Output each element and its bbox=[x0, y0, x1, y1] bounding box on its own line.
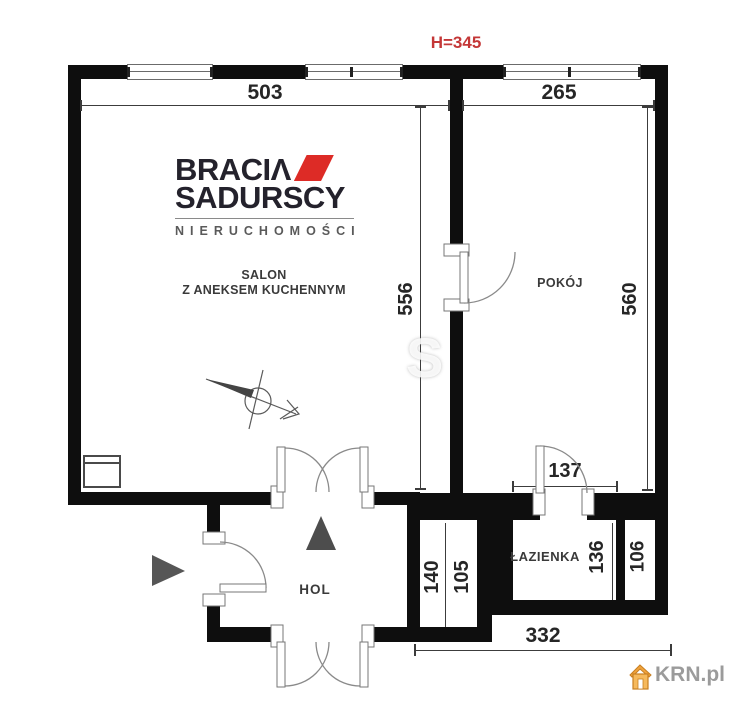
door-swing-arc bbox=[220, 542, 266, 588]
logo-divider bbox=[175, 218, 354, 219]
dimtick bbox=[462, 100, 464, 111]
window-glass-line bbox=[128, 71, 212, 72]
entrance-door bbox=[203, 532, 266, 606]
dimtick bbox=[414, 644, 416, 656]
dim-bath-width: 137 bbox=[525, 461, 605, 481]
door-leaf bbox=[277, 447, 285, 492]
door-swing-arc bbox=[285, 642, 329, 686]
door-swing-arc bbox=[464, 252, 515, 303]
agency-logo: BRACIΛ SADURSCY NIERUCHOMOŚCI bbox=[175, 154, 361, 238]
window-glass-line bbox=[504, 71, 640, 72]
dimtick bbox=[512, 481, 514, 492]
dimtick bbox=[642, 106, 653, 108]
salon-line2: Z ANEKSEM KUCHENNYM bbox=[164, 283, 364, 298]
dimline-265 bbox=[463, 105, 655, 106]
dimtick bbox=[616, 481, 618, 492]
logo-line2-text: SADURSCY bbox=[175, 182, 361, 213]
dim-pokoj-width: 265 bbox=[519, 82, 599, 103]
window-mullion bbox=[400, 67, 403, 77]
wall-right bbox=[655, 65, 668, 615]
dimline-332 bbox=[415, 650, 672, 651]
wall-left bbox=[68, 65, 81, 505]
dim-salon-depth: 556 bbox=[396, 278, 416, 320]
window-mullion bbox=[127, 67, 130, 77]
wall-hol-bottom-left bbox=[207, 627, 277, 642]
dimtick bbox=[415, 488, 426, 490]
door-leaf bbox=[460, 252, 468, 303]
dimline-556 bbox=[420, 107, 421, 490]
dimline-137 bbox=[513, 486, 618, 487]
wall-salon-bottom-left bbox=[68, 492, 277, 505]
window-salon-1 bbox=[127, 64, 213, 80]
room-label-salon: SALON Z ANEKSEM KUCHENNYM bbox=[164, 268, 364, 298]
wall-bath-top-left bbox=[407, 493, 540, 520]
dimtick bbox=[80, 100, 82, 111]
ceiling-height-label: H=345 bbox=[416, 33, 496, 53]
watermark-letter: S bbox=[406, 330, 443, 386]
compass-arrowhead bbox=[206, 379, 254, 398]
room-label-hol: HOL bbox=[285, 582, 345, 598]
door-swing-arc bbox=[316, 642, 360, 686]
dimline-560 bbox=[647, 107, 648, 491]
wall-bath-right bbox=[616, 520, 625, 600]
logo-red-flag-icon bbox=[294, 155, 334, 181]
logo-line3-text: NIERUCHOMOŚCI bbox=[175, 224, 361, 238]
dimtick bbox=[670, 644, 672, 656]
dimline-niche bbox=[445, 523, 446, 627]
dimline-136 bbox=[612, 523, 613, 600]
door-leaf bbox=[360, 642, 368, 687]
dim-salon-width: 503 bbox=[225, 82, 305, 103]
door-swing-arc bbox=[316, 448, 360, 492]
window-salon-2 bbox=[305, 64, 403, 80]
kitchen-appliance-symbol bbox=[83, 455, 121, 488]
door-swing-arc bbox=[285, 448, 329, 492]
wall-divider-lower bbox=[450, 303, 463, 493]
window-pokoj bbox=[503, 64, 641, 80]
wall-bath-bottom bbox=[492, 600, 668, 615]
window-mullion bbox=[350, 67, 353, 77]
door-leaf bbox=[277, 642, 285, 687]
entrance-arrow-icon bbox=[152, 555, 185, 586]
compass-tail bbox=[283, 400, 299, 419]
window-mullion bbox=[210, 67, 213, 77]
dimline-503 bbox=[81, 105, 450, 106]
window-mullion bbox=[568, 67, 571, 77]
dim-bottom-width: 332 bbox=[503, 625, 583, 646]
wall-hol-left-upper bbox=[207, 505, 220, 540]
floorplan-canvas: 503 265 556 560 137 140 105 136 106 332 … bbox=[0, 0, 740, 704]
dimtick bbox=[642, 489, 653, 491]
salon-line1: SALON bbox=[164, 268, 364, 283]
compass-circle bbox=[245, 388, 271, 414]
wall-hol-right bbox=[407, 505, 420, 642]
dimtick bbox=[415, 106, 426, 108]
door-leaf bbox=[220, 584, 266, 592]
dim-shaft: 106 bbox=[629, 536, 648, 578]
dim-pokoj-depth: 560 bbox=[620, 278, 640, 320]
compass-tail-2 bbox=[280, 407, 298, 419]
double-door-hol-exit bbox=[271, 625, 374, 687]
double-door-salon-hol bbox=[271, 447, 374, 508]
krn-label: KRN.pl bbox=[655, 663, 725, 687]
window-glass-line bbox=[306, 71, 402, 72]
door-leaf bbox=[360, 447, 368, 492]
appliance-detail-line bbox=[85, 462, 119, 464]
dimtick bbox=[448, 100, 450, 111]
krn-watermark: KRN.pl bbox=[629, 663, 725, 687]
window-mullion bbox=[305, 67, 308, 77]
dimtick bbox=[653, 100, 655, 111]
room-label-lazienka: ŁAZIENKA bbox=[495, 549, 595, 565]
room-label-pokoj: POKÓJ bbox=[510, 276, 610, 291]
dim-niche-left: 140 bbox=[422, 556, 442, 598]
up-arrow-icon bbox=[306, 516, 336, 550]
wall-bath-top-right bbox=[587, 493, 668, 520]
pokoj-door bbox=[444, 244, 515, 311]
compass-cross-line bbox=[249, 370, 263, 429]
compass-line bbox=[206, 379, 296, 414]
window-mullion bbox=[638, 67, 641, 77]
north-arrow-icon bbox=[206, 370, 299, 429]
wall-hol-bottom-right bbox=[368, 627, 492, 642]
window-mullion bbox=[503, 67, 506, 77]
dim-niche-mid: 105 bbox=[452, 556, 472, 598]
